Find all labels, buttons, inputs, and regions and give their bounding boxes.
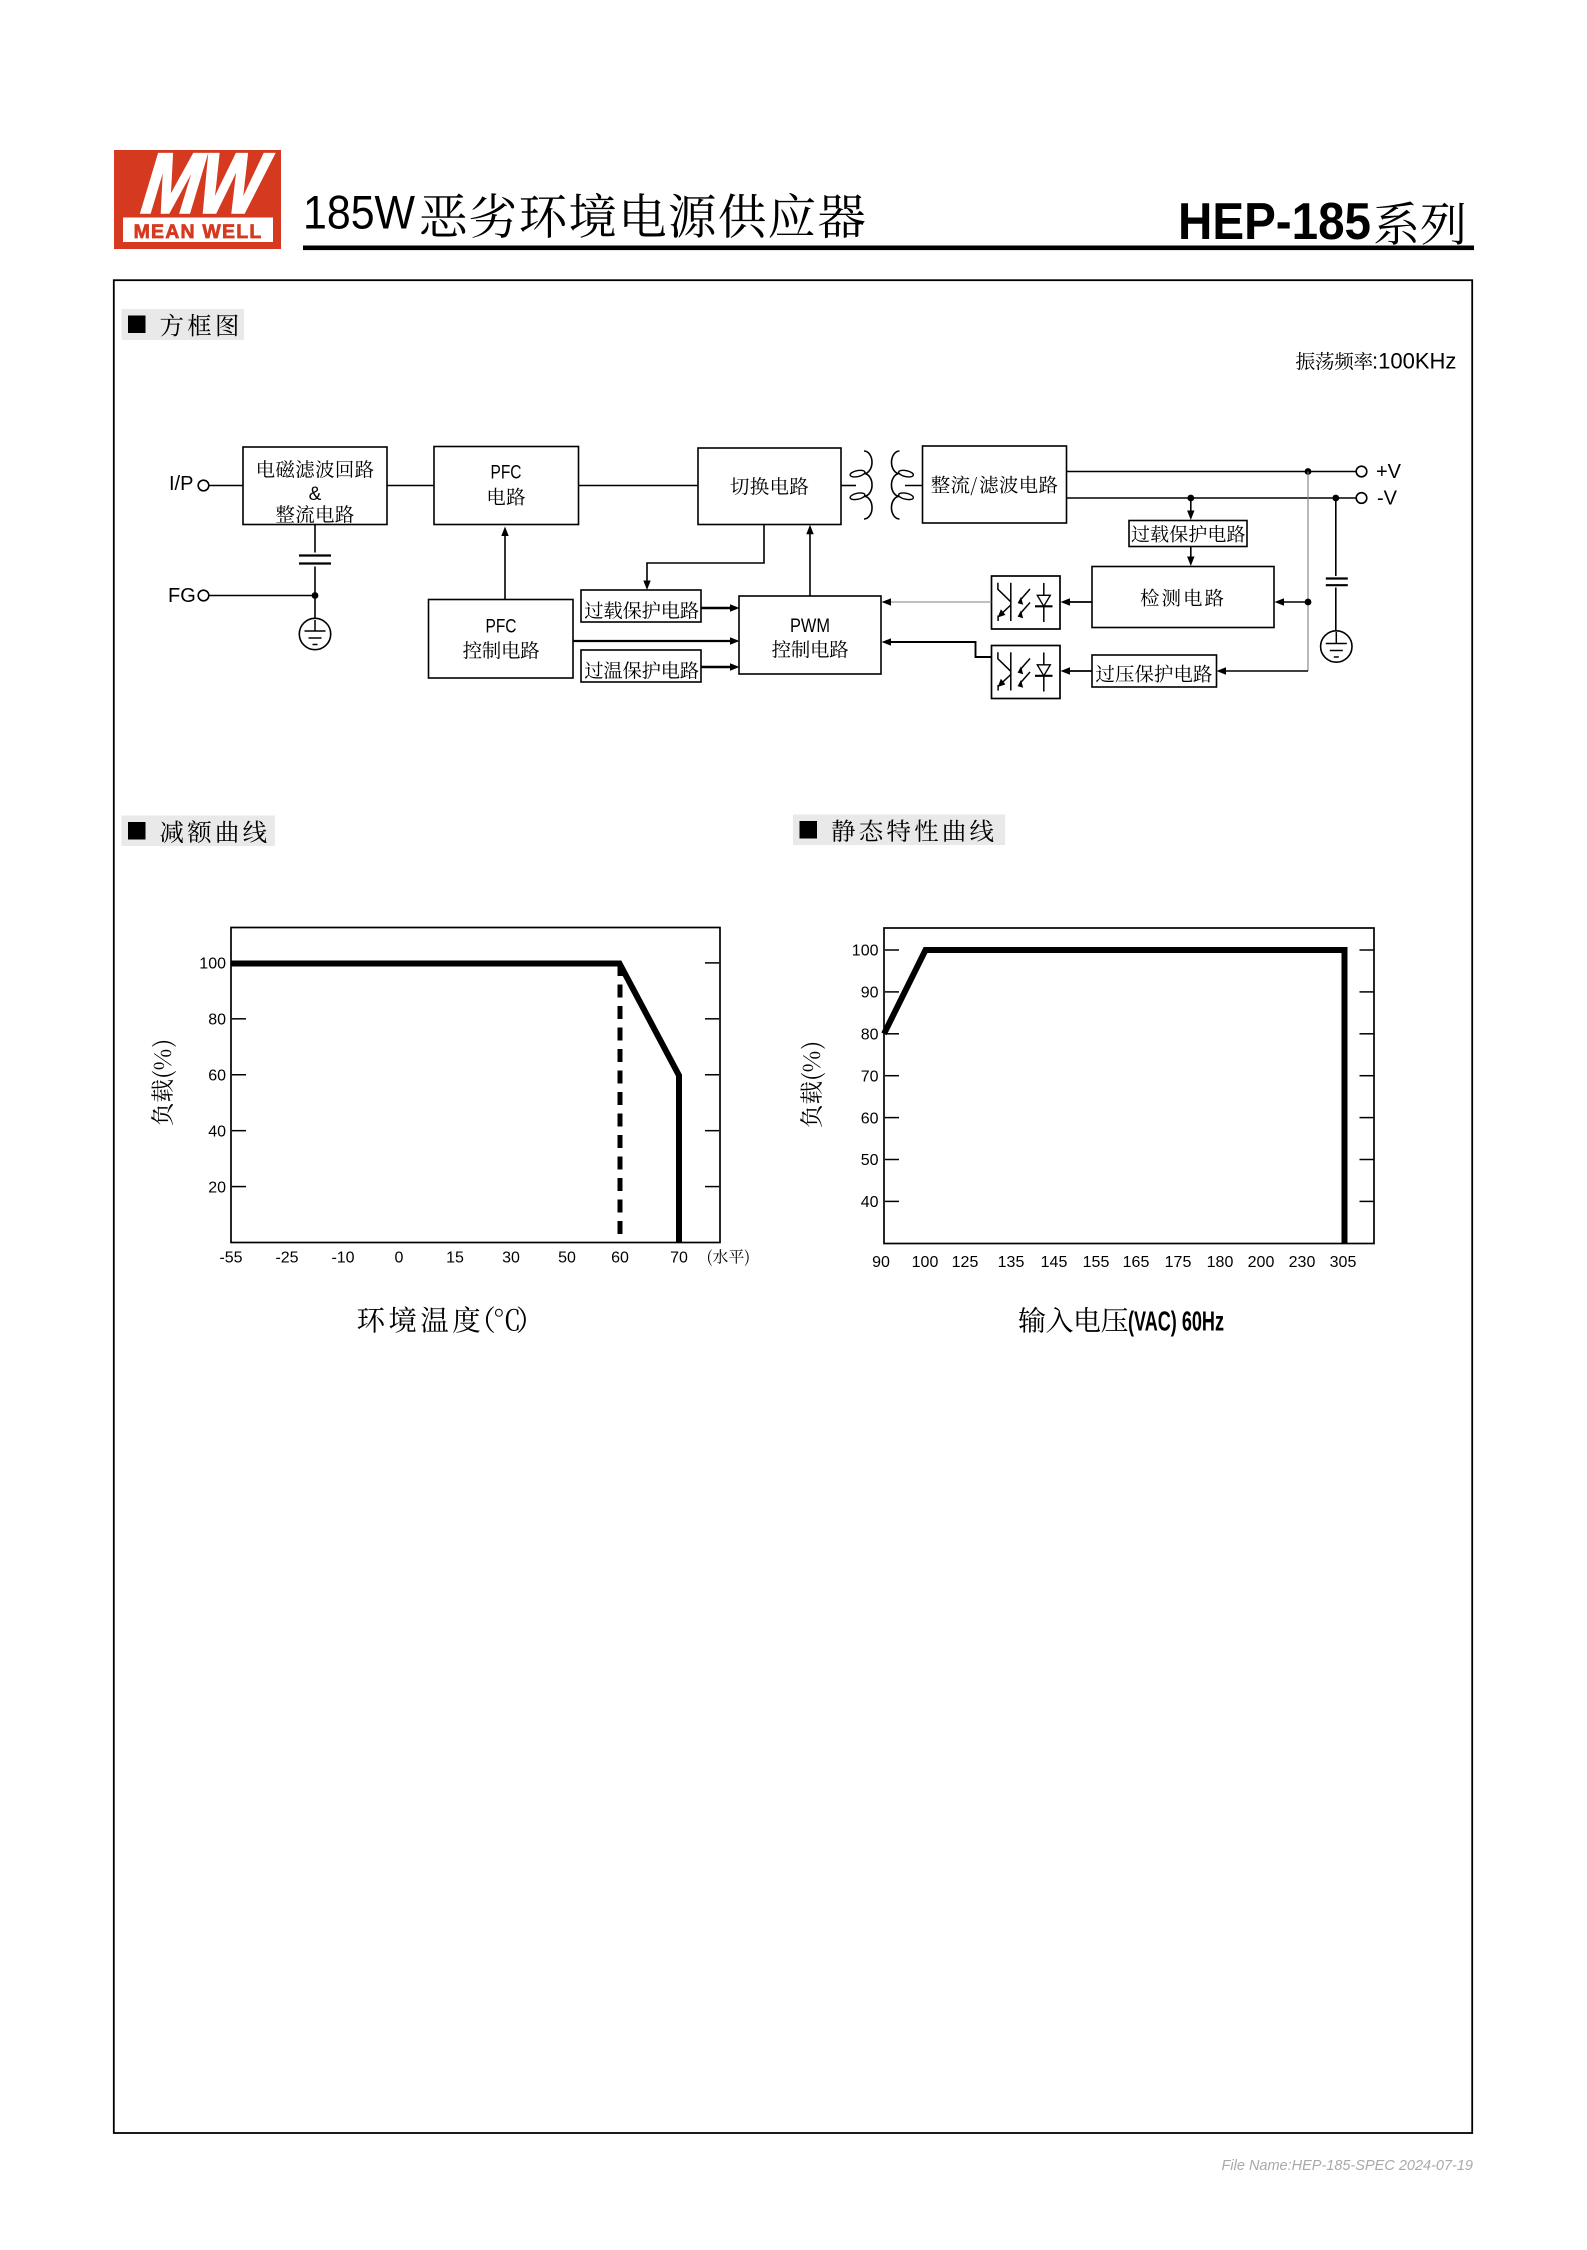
svg-text:60: 60 [861,1110,879,1127]
svg-text:305: 305 [1330,1254,1357,1271]
svg-text:70: 70 [670,1250,688,1267]
svg-text:200: 200 [1248,1254,1275,1271]
svg-text:60: 60 [208,1067,226,1084]
svg-text:165: 165 [1123,1254,1150,1271]
svg-text:MW: MW [137,137,276,231]
svg-text:100: 100 [199,956,226,973]
svg-text:125: 125 [952,1254,979,1271]
svg-text:180: 180 [1207,1254,1234,1271]
svg-text:80: 80 [208,1012,226,1029]
svg-text:(VAC) 60Hz: (VAC) 60Hz [1128,1306,1224,1337]
svg-text:&: & [309,484,322,505]
svg-text:20: 20 [208,1179,226,1196]
svg-text:145: 145 [1041,1254,1068,1271]
svg-text:PWM: PWM [790,615,830,637]
svg-text:70: 70 [861,1068,879,1085]
svg-text:100: 100 [852,943,879,960]
svg-text:40: 40 [861,1194,879,1211]
svg-text:230: 230 [1289,1254,1316,1271]
svg-text:File Name:HEP-185-SPEC 2024-07: File Name:HEP-185-SPEC 2024-07-19 [1222,2158,1473,2174]
svg-text:30: 30 [502,1250,520,1267]
svg-text::100KHz: :100KHz [1372,349,1456,374]
svg-text:MEAN WELL: MEAN WELL [134,221,263,243]
svg-text:100: 100 [912,1254,939,1271]
svg-text:I/P: I/P [169,473,193,495]
svg-text:PFC: PFC [491,462,522,484]
svg-text:HEP-185: HEP-185 [1178,193,1371,251]
svg-text:-10: -10 [331,1250,354,1267]
svg-text:50: 50 [861,1152,879,1169]
svg-text:80: 80 [861,1027,879,1044]
svg-text:-V: -V [1377,488,1398,510]
svg-text:+V: +V [1376,461,1402,483]
svg-text:FG: FG [168,585,196,607]
svg-text:90: 90 [861,985,879,1002]
svg-text:-55: -55 [219,1250,242,1267]
svg-text:15: 15 [446,1250,464,1267]
svg-text:90: 90 [872,1254,890,1271]
svg-text:50: 50 [558,1250,576,1267]
svg-text:155: 155 [1083,1254,1110,1271]
svg-text:135: 135 [998,1254,1025,1271]
svg-text:0: 0 [395,1250,404,1267]
svg-text:40: 40 [208,1123,226,1140]
svg-text:PFC: PFC [486,616,517,638]
svg-text:175: 175 [1165,1254,1192,1271]
svg-text:60: 60 [611,1250,629,1267]
svg-text:-25: -25 [275,1250,298,1267]
svg-text:185W: 185W [303,186,416,239]
